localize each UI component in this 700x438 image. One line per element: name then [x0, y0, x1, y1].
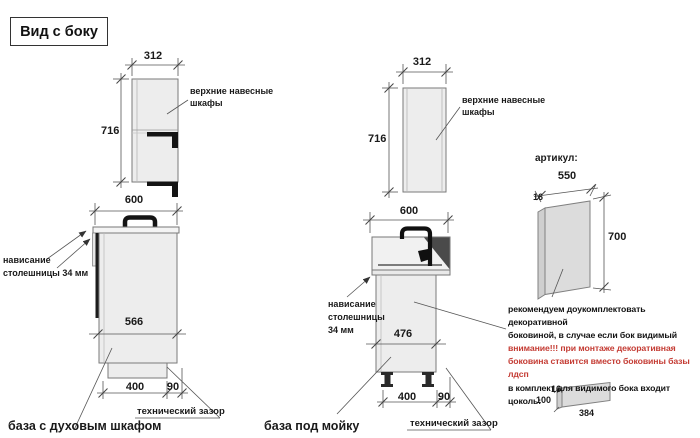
- page-title: Вид с боку: [20, 24, 98, 40]
- left-caption: база с духовым шкафом: [8, 419, 161, 433]
- panel-height-dim: 700: [608, 231, 626, 243]
- left-overhang-label: нависание столешницы 34 мм: [3, 254, 88, 280]
- middle-upper-label: верхние навесные шкафы: [462, 94, 545, 118]
- left-base-width-dim: 600: [125, 194, 143, 206]
- middle-gap-dim: 90: [438, 391, 450, 403]
- left-upper-height-dim: 716: [101, 125, 119, 137]
- right-decor-panel: [534, 184, 611, 299]
- panel-thickness-dim: 16: [533, 192, 543, 202]
- note-line-4: боковина ставится вместо боковины базы л…: [508, 355, 700, 381]
- middle-overhang-label: нависание столешницы 34 мм: [328, 298, 385, 337]
- left-tech-gap-label: технический зазор: [137, 406, 225, 417]
- note-line-2: боковиной, в случае если бок видимый: [508, 329, 700, 342]
- middle-depth-dim: 476: [394, 328, 412, 340]
- left-upper-width-dim: 312: [144, 50, 162, 62]
- left-depth-dim: 566: [125, 316, 143, 328]
- left-upper-cabinet: [113, 58, 188, 197]
- note-line-1: рекомендуем доукомплектовать декоративно…: [508, 303, 700, 329]
- note-block: рекомендуем доукомплектовать декоративно…: [508, 303, 700, 408]
- middle-upper-width-dim: 312: [413, 56, 431, 68]
- left-gap-dim: 90: [167, 381, 179, 393]
- middle-upper-cabinet: [382, 64, 460, 198]
- panel-width-dim: 550: [558, 170, 576, 182]
- side-view-drawing: Вид с боку 312 716 верхние навесные шкаф…: [0, 0, 700, 438]
- plinth-height-dim: 100: [536, 395, 551, 405]
- middle-upper-height-dim: 716: [368, 133, 386, 145]
- article-label: артикул:: [535, 153, 578, 164]
- note-line-3: внимание!!! при монтаже декоративная: [508, 342, 700, 355]
- middle-tech-gap-label: технический зазор: [410, 418, 498, 429]
- left-upper-label: верхние навесные шкафы: [190, 85, 273, 109]
- middle-base-width-dim: 600: [400, 205, 418, 217]
- plinth-thickness-dim: 16: [551, 384, 561, 394]
- middle-plinth-dim: 400: [398, 391, 416, 403]
- title-box: Вид с боку: [10, 17, 108, 46]
- left-plinth-dim: 400: [126, 381, 144, 393]
- plinth-length-dim: 384: [579, 408, 594, 418]
- middle-caption: база под мойку: [264, 419, 359, 433]
